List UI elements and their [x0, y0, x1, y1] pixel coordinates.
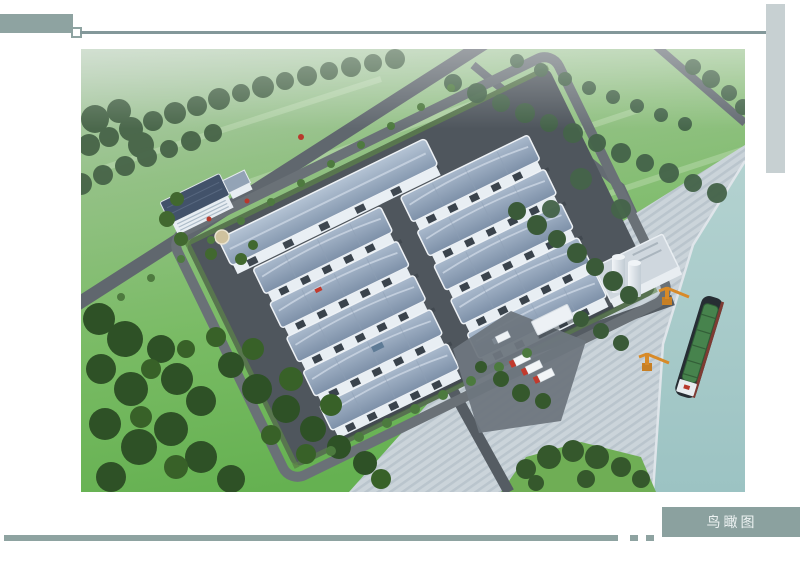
deco-bar-top-right	[766, 4, 785, 173]
deco-line-top	[80, 31, 766, 34]
deco-line-bottom	[4, 535, 618, 541]
deco-dash-1	[630, 535, 638, 541]
presentation-slide: 鸟瞰图	[0, 0, 800, 566]
aerial-view-rendering	[81, 49, 745, 492]
caption-box: 鸟瞰图	[662, 507, 800, 537]
caption-label: 鸟瞰图	[707, 512, 758, 532]
deco-dash-2	[646, 535, 654, 541]
deco-block-top-left	[0, 14, 73, 33]
aerial-render-image	[81, 49, 745, 492]
